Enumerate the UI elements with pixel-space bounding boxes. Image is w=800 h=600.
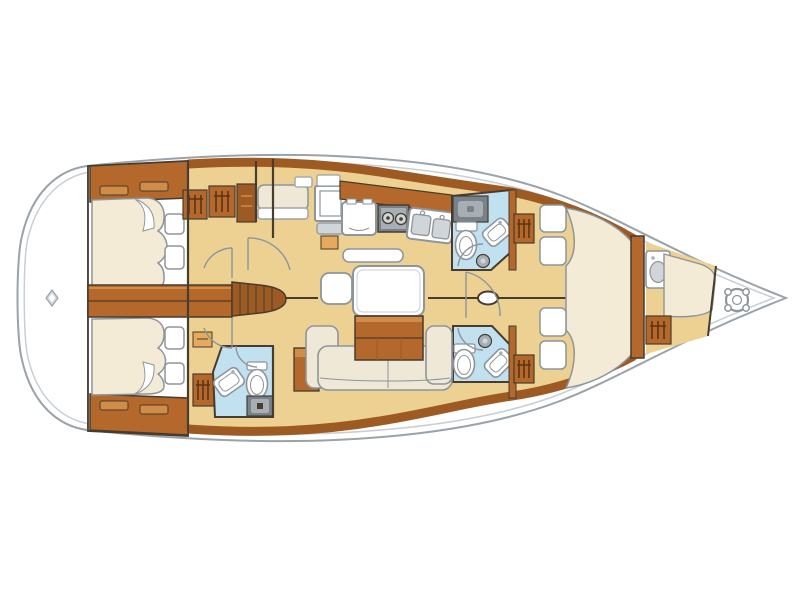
- counter-front: [343, 249, 403, 262]
- salon-table: [353, 266, 424, 316]
- nav-seat-front: [258, 208, 308, 219]
- pillow: [165, 246, 184, 269]
- shelf-handle: [140, 182, 168, 191]
- fridge: [342, 199, 376, 235]
- mid-head-top: [452, 190, 514, 270]
- hanger-icon: [517, 360, 531, 378]
- stove: [378, 205, 409, 232]
- deck-hatch: [317, 175, 340, 186]
- aft-cabin-bottom: [88, 298, 188, 436]
- shelf-handle: [100, 401, 128, 410]
- hanger-icon: [214, 191, 230, 212]
- pillow: [165, 214, 184, 234]
- aft-head: [212, 346, 273, 417]
- toilet: [456, 222, 478, 260]
- shelf-handle: [140, 405, 168, 414]
- double-berth: [92, 318, 166, 395]
- shelf: [90, 394, 188, 435]
- pillow: [165, 363, 184, 384]
- deck-hatch: [295, 177, 312, 187]
- shelf-handle: [100, 186, 128, 195]
- pillow: [540, 237, 566, 265]
- double-sink: [406, 207, 454, 243]
- forward-bulkhead: [631, 236, 644, 358]
- pillow: [540, 205, 566, 232]
- nav-seat: [258, 185, 308, 210]
- ottoman: [321, 273, 352, 304]
- toilet: [454, 344, 476, 379]
- sofa-right-arm: [426, 326, 452, 384]
- cabinet: [237, 184, 256, 222]
- hanger-icon: [196, 380, 210, 400]
- pillow: [540, 341, 566, 369]
- shower-drain: [247, 396, 273, 416]
- hanger-icon: [650, 321, 666, 339]
- pillow: [540, 308, 566, 336]
- hanger-icon: [517, 219, 531, 238]
- nav-stool: [317, 223, 343, 234]
- anchor-windlass-icon: [725, 289, 749, 311]
- shower-unit: [453, 196, 488, 222]
- double-berth: [92, 198, 167, 294]
- hanger-icon: [187, 195, 203, 214]
- small-cabinet: [321, 236, 338, 249]
- table-chest: [355, 316, 423, 360]
- yacht-floor-plan: [0, 0, 800, 600]
- aft-cabin-top: [88, 161, 188, 296]
- pillow: [165, 327, 184, 349]
- sink-basin: [411, 214, 431, 236]
- sink-basin: [432, 218, 451, 239]
- v-berth: [566, 208, 632, 388]
- shelf: [90, 161, 188, 202]
